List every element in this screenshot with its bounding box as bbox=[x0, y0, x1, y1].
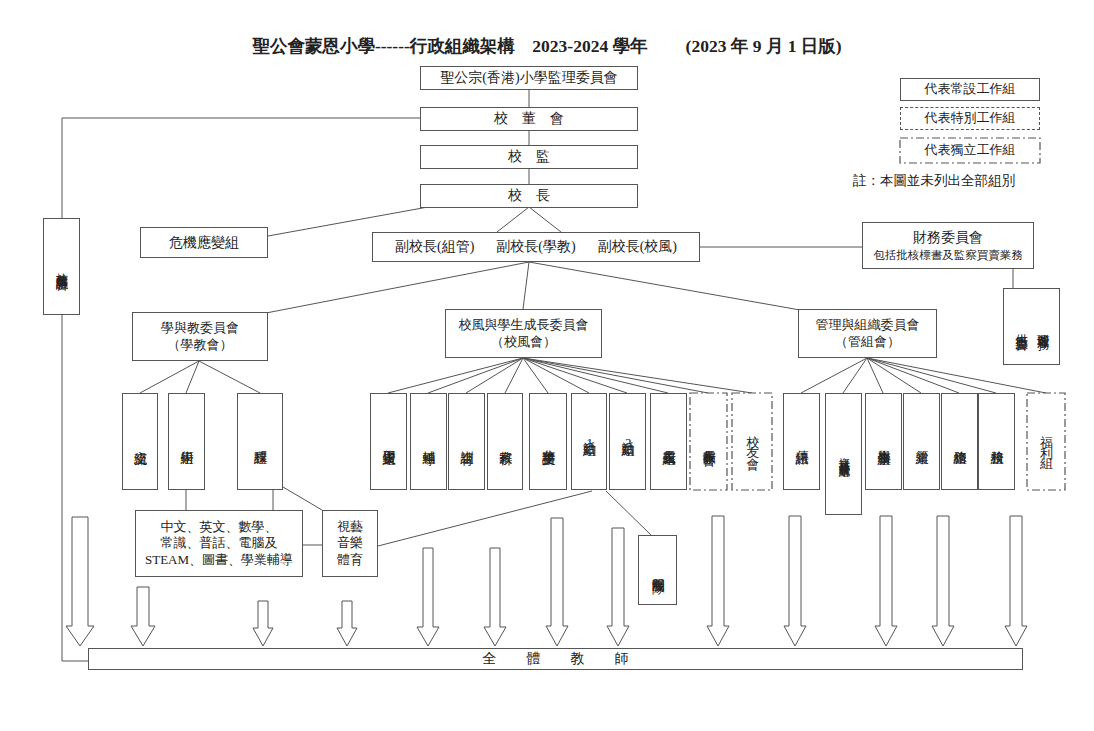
node-all-teachers: 全體教師 bbox=[88, 648, 1023, 670]
group-religious: 宗教科 bbox=[487, 393, 523, 490]
node-council: 聖公宗(香港)小學監理委員會 bbox=[420, 66, 638, 90]
page-title: 聖公會蒙恩小學------行政組織架構 2023-2024 學年 (2023 年… bbox=[0, 34, 1094, 58]
group-discipline: 訓育組 bbox=[448, 393, 485, 490]
group-parent-volunteers: 家長義工組 bbox=[650, 393, 687, 490]
vp-learning: 副校長(學教) bbox=[496, 238, 575, 256]
title-main: 聖公會蒙恩小學------行政組織架構 2023-2024 學年 bbox=[252, 34, 647, 58]
node-principal: 校長 bbox=[420, 184, 638, 208]
legend-independent-group: 代表獨立工作組 bbox=[900, 138, 1040, 163]
vp-ethos: 副校長(校風) bbox=[598, 238, 677, 256]
committee-pastoral: 校風與學生成長委員會 （校風會） bbox=[445, 309, 602, 358]
group-alumni: 校友會 bbox=[732, 393, 772, 490]
finance-subtitle: 包括批核標書及監察買賣業務 bbox=[873, 248, 1023, 262]
group-premises: 管業組 bbox=[903, 393, 940, 490]
node-vice-principals: 副校長(組管) 副校長(學教) 副校長(校風) bbox=[372, 232, 700, 262]
node-school-board: 校董會 bbox=[420, 107, 638, 131]
supply-role: 管理各服務 bbox=[1035, 324, 1051, 329]
committee-teaching: 學與教委員會 （學教會） bbox=[132, 312, 268, 361]
group-it-sams: 資訊科技及校管系統組 bbox=[825, 393, 862, 515]
group-activities-1: 活動組1 bbox=[571, 393, 607, 490]
finance-title: 財務委員會 bbox=[913, 229, 983, 247]
legend-special-group: 代表特別工作組 bbox=[900, 107, 1040, 130]
supply-name: 供應委員會 bbox=[1013, 324, 1029, 329]
group-academic: 學術組 bbox=[168, 393, 205, 490]
group-ncs-support: 非華語支援 bbox=[529, 393, 567, 490]
group-pta: 家長教師會 bbox=[690, 393, 727, 490]
legend-note: 註：本圖並未列出全部組別 bbox=[853, 172, 1015, 190]
node-board-teacher-advisory: 校董教師諮議會 bbox=[43, 218, 80, 315]
node-crisis-team: 危機應變組 bbox=[140, 227, 268, 258]
node-uniform-teams: 制服團隊 bbox=[638, 535, 677, 605]
title-version: (2023 年 9 月 1 日版) bbox=[686, 34, 842, 58]
group-general-affairs: 總務組 bbox=[941, 393, 978, 490]
group-welfare: 福利組 bbox=[1027, 393, 1065, 490]
group-school-office: 校務組 bbox=[978, 393, 1015, 490]
committee-management: 管理與組織委員會 （管組會） bbox=[798, 309, 937, 358]
group-curriculum: 課程組 bbox=[237, 393, 283, 490]
group-communications: 傳訊組 bbox=[783, 393, 820, 490]
node-arts-music-pe: 視藝 音樂 體育 bbox=[322, 510, 378, 577]
node-subjects: 中文、英文、數學、 常識、普話、電腦及 STEAM、圖書、學業輔導 bbox=[135, 510, 303, 577]
legend-permanent-group: 代表常設工作組 bbox=[900, 78, 1040, 101]
group-counselling: 輔導組 bbox=[410, 393, 447, 490]
group-activities-2: 活動組2 bbox=[609, 393, 646, 490]
org-chart: 聖公會蒙恩小學------行政組織架構 2023-2024 學年 (2023 年… bbox=[0, 0, 1094, 731]
node-supervisor: 校監 bbox=[420, 145, 638, 169]
node-finance-committee: 財務委員會 包括批核標書及監察買賣業務 bbox=[862, 222, 1034, 269]
node-supply-committee: 供應委員會 管理各服務 bbox=[1003, 288, 1060, 365]
group-exchange: 交流組 bbox=[122, 393, 158, 490]
group-student-affairs: 學生事務組 bbox=[865, 393, 902, 490]
vp-group-admin: 副校長(組管) bbox=[395, 238, 474, 256]
group-learning-support: 學習支援組 bbox=[370, 393, 407, 490]
